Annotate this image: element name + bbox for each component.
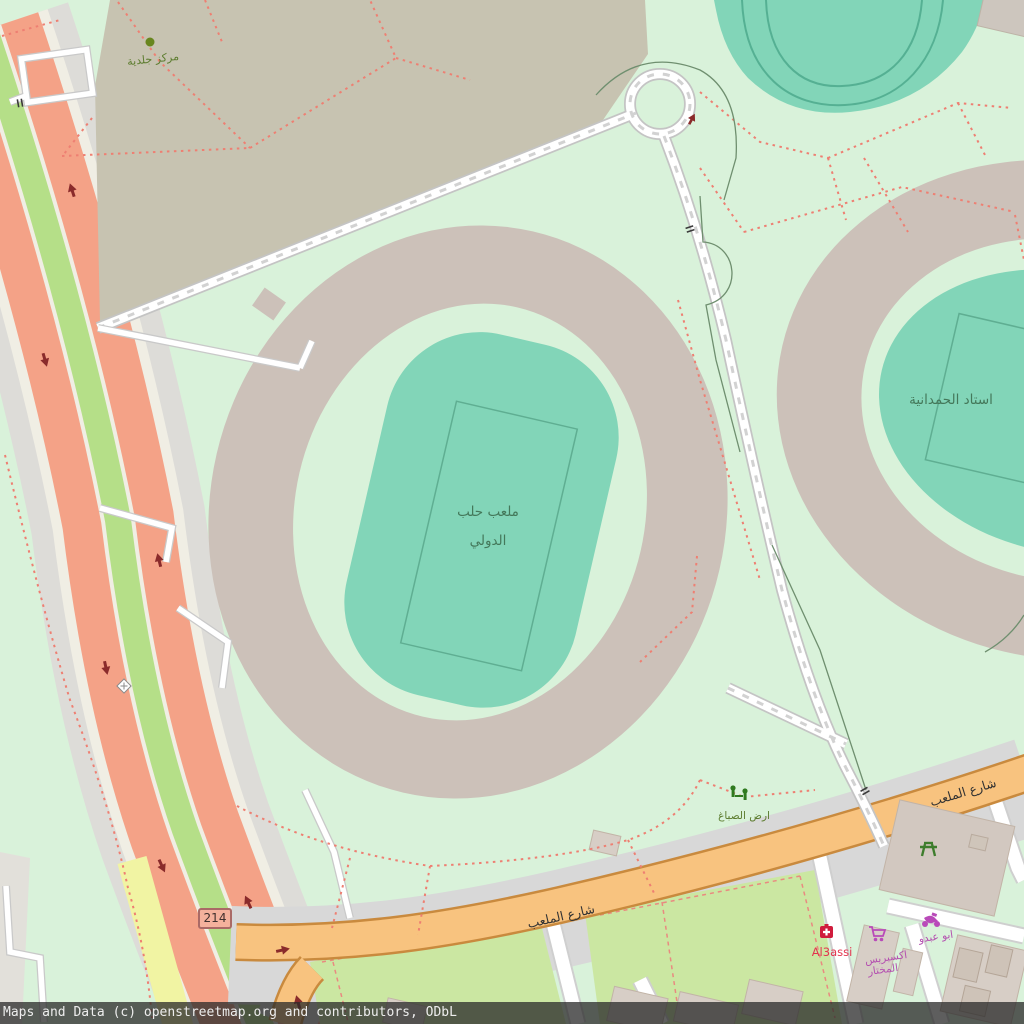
map-canvas[interactable]: مركز جلدية ملعب حلب الدولي استاد الحمدان…: [0, 0, 1024, 1024]
first-aid-icon: [820, 924, 833, 938]
route-shield: 214: [198, 908, 232, 929]
map-tiles: [0, 0, 1024, 1024]
attribution-bar: Maps and Data (c) openstreetmap.org and …: [0, 1002, 1024, 1024]
clinic-dot-icon: [146, 38, 155, 47]
